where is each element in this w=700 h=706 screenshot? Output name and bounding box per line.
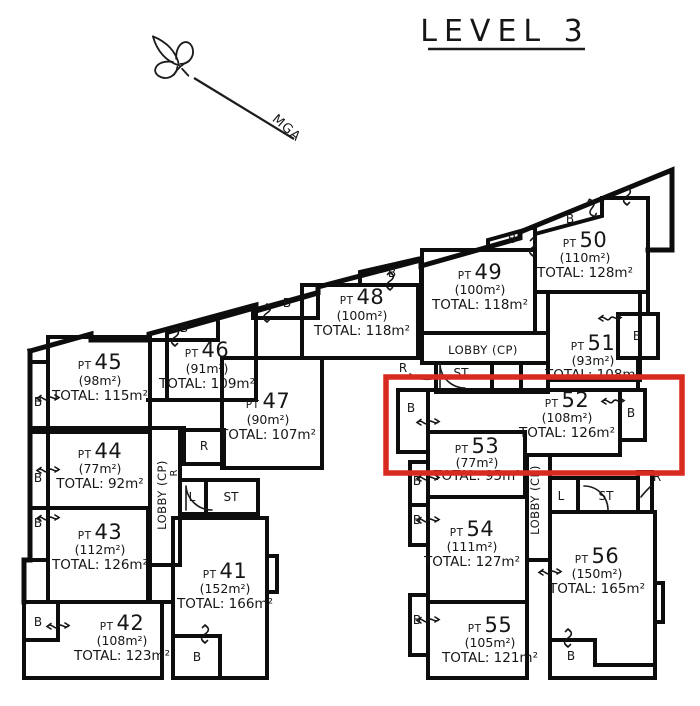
door-swing-icon <box>599 315 621 321</box>
svg-text:TOTAL: 166m²: TOTAL: 166m² <box>176 596 273 612</box>
svg-text:TOTAL: 123m²: TOTAL: 123m² <box>73 648 170 664</box>
door-swing-icon <box>602 398 624 404</box>
floor-plan-drawing: LEVEL 3 MGA BBBBBBBBBBBBBBBBBRRRRLLSTSTS… <box>0 0 700 706</box>
unit-label-pt46: PT46 (91m²) TOTAL: 109m² <box>158 338 255 392</box>
svg-text:TOTAL: 107m²: TOTAL: 107m² <box>219 427 316 443</box>
svg-text:(111m²): (111m²) <box>447 539 498 554</box>
riser-label: R <box>399 361 407 375</box>
balcony-label: B <box>567 649 575 663</box>
balcony-label: B <box>627 406 635 420</box>
svg-text:(98m²): (98m²) <box>79 373 122 388</box>
svg-text:TOTAL: 165m²: TOTAL: 165m² <box>548 581 645 597</box>
lobby-label: LOBBY (CP) <box>448 343 518 357</box>
unit-label-pt50: PT50 (110m²) TOTAL: 128m² <box>536 228 633 281</box>
svg-text:PT47: PT47 <box>246 389 290 413</box>
svg-text:(93m²): (93m²) <box>572 353 615 368</box>
lift-label: L <box>558 489 565 503</box>
svg-text:TOTAL: 126m²: TOTAL: 126m² <box>51 557 148 573</box>
balcony-label: B <box>407 401 415 415</box>
svg-text:PT45: PT45 <box>78 350 122 374</box>
svg-text:(100m²): (100m²) <box>337 308 388 323</box>
unit-label-pt55: PT55 (105m²) TOTAL: 121m² <box>441 613 538 666</box>
riser-label: R <box>200 439 208 453</box>
svg-text:(77m²): (77m²) <box>79 461 122 476</box>
unit-label-pt47: PT47 (90m²) TOTAL: 107m² <box>219 389 316 443</box>
riser-label: R <box>169 469 180 476</box>
svg-text:(110m²): (110m²) <box>560 250 611 265</box>
svg-text:PT43: PT43 <box>78 520 122 544</box>
store-label: ST <box>224 490 240 504</box>
store-label: ST <box>599 489 615 503</box>
unit-label-pt43: PT43 (112m²) TOTAL: 126m² <box>51 520 148 573</box>
svg-text:PT49: PT49 <box>458 260 502 284</box>
balcony-label: B <box>34 615 42 629</box>
svg-text:(150m²): (150m²) <box>572 566 623 581</box>
page-title: LEVEL 3 <box>420 14 589 49</box>
balcony-label: B <box>180 321 188 335</box>
svg-text:PT56: PT56 <box>575 544 619 568</box>
unit-label-pt52: PT52 (108m²) TOTAL: 126m² <box>518 388 615 441</box>
riser-leader-line <box>641 486 651 497</box>
balcony-label: B <box>283 296 291 310</box>
svg-text:(90m²): (90m²) <box>247 412 290 427</box>
svg-text:PT42: PT42 <box>100 611 144 635</box>
svg-text:TOTAL: 115m²: TOTAL: 115m² <box>51 388 148 404</box>
svg-text:(108m²): (108m²) <box>542 410 593 425</box>
unit-label-pt45: PT45 (98m²) TOTAL: 115m² <box>51 350 148 404</box>
svg-text:TOTAL: 121m²: TOTAL: 121m² <box>441 650 538 666</box>
svg-text:(105m²): (105m²) <box>465 635 516 650</box>
lift-label: L <box>189 490 196 504</box>
unit-label-pt42: PT42 (108m²) TOTAL: 123m² <box>73 611 170 664</box>
svg-text:PT55: PT55 <box>468 613 512 637</box>
unit-label-pt54: PT54 (111m²) TOTAL: 127m² <box>423 517 520 570</box>
svg-text:TOTAL: 126m²: TOTAL: 126m² <box>518 425 615 441</box>
svg-text:TOTAL: 127m²: TOTAL: 127m² <box>423 554 520 570</box>
svg-text:PT41: PT41 <box>203 559 247 583</box>
unit-label-pt49: PT49 (100m²) TOTAL: 118m² <box>431 260 528 313</box>
unit-label-pt44: PT44 (77m²) TOTAL: 92m² <box>55 439 143 492</box>
svg-text:TOTAL: 109m²: TOTAL: 109m² <box>158 376 255 392</box>
svg-text:PT51: PT51 <box>571 331 615 355</box>
unit-label-pt41: PT41 (152m²) TOTAL: 166m² <box>176 559 273 612</box>
balcony-label: B <box>508 232 516 246</box>
north-datum-label: MGA <box>269 112 304 145</box>
svg-text:(100m²): (100m²) <box>455 282 506 297</box>
unit-label-pt56: PT56 (150m²) TOTAL: 165m² <box>548 544 645 597</box>
svg-text:PT44: PT44 <box>78 439 122 463</box>
svg-text:(152m²): (152m²) <box>200 581 251 596</box>
svg-text:PT50: PT50 <box>563 228 607 252</box>
unit-label-pt48: PT48 (100m²) TOTAL: 118m² <box>313 285 410 339</box>
svg-text:TOTAL: 118m²: TOTAL: 118m² <box>313 323 410 339</box>
svg-text:TOTAL: 92m²: TOTAL: 92m² <box>55 476 143 492</box>
unit-label-pt53: PT53 (77m²) TOTAL: 95m² <box>432 434 520 484</box>
balcony-label: B <box>193 650 201 664</box>
svg-text:(112m²): (112m²) <box>75 542 126 557</box>
lobby-label: LOBBY (CP) <box>155 460 169 530</box>
svg-text:TOTAL: 128m²: TOTAL: 128m² <box>536 265 633 281</box>
svg-text:(108m²): (108m²) <box>97 633 148 648</box>
floor-plan-page: LEVEL 3 MGA BBBBBBBBBBBBBBBBBRRRRLLSTSTS… <box>0 0 700 706</box>
svg-text:PT48: PT48 <box>340 285 384 309</box>
svg-text:(91m²): (91m²) <box>186 361 229 376</box>
svg-text:TOTAL: 118m²: TOTAL: 118m² <box>431 297 528 313</box>
svg-text:PT54: PT54 <box>450 517 494 541</box>
balcony-label: B <box>633 329 641 343</box>
balcony-label: B <box>566 212 574 226</box>
